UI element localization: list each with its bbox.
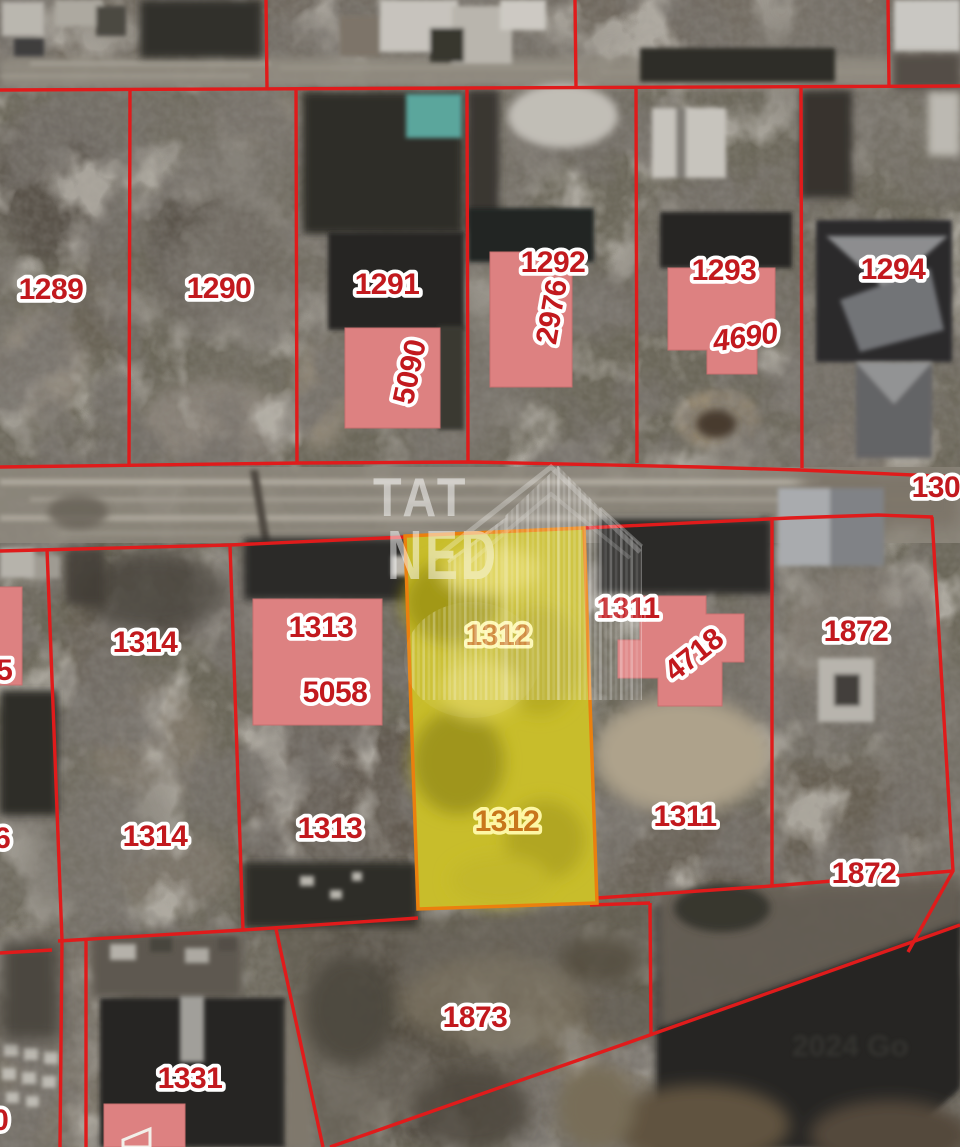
svg-text:1331: 1331 bbox=[158, 1062, 223, 1095]
svg-text:1289: 1289 bbox=[19, 273, 84, 306]
svg-text:1315: 1315 bbox=[0, 654, 12, 687]
svg-text:1313: 1313 bbox=[289, 611, 354, 644]
svg-text:1311: 1311 bbox=[653, 800, 716, 833]
svg-text:1872: 1872 bbox=[824, 615, 889, 648]
svg-text:1292: 1292 bbox=[521, 246, 586, 279]
svg-text:1291: 1291 bbox=[355, 268, 420, 301]
svg-text:1872: 1872 bbox=[832, 857, 897, 890]
svg-text:1312: 1312 bbox=[475, 805, 540, 838]
svg-text:5058: 5058 bbox=[303, 676, 368, 709]
svg-text:1316: 1316 bbox=[0, 822, 10, 855]
svg-text:1314: 1314 bbox=[113, 626, 179, 659]
svg-text:1314: 1314 bbox=[123, 820, 189, 853]
svg-text:1293: 1293 bbox=[692, 254, 757, 287]
svg-text:1294: 1294 bbox=[861, 253, 927, 286]
svg-text:1330: 1330 bbox=[0, 1104, 8, 1137]
svg-text:1313: 1313 bbox=[298, 812, 363, 845]
svg-text:2024 Go: 2024 Go bbox=[792, 1030, 909, 1063]
svg-text:1303: 1303 bbox=[912, 471, 960, 504]
svg-text:1873: 1873 bbox=[443, 1001, 508, 1034]
svg-text:1290: 1290 bbox=[187, 272, 252, 305]
